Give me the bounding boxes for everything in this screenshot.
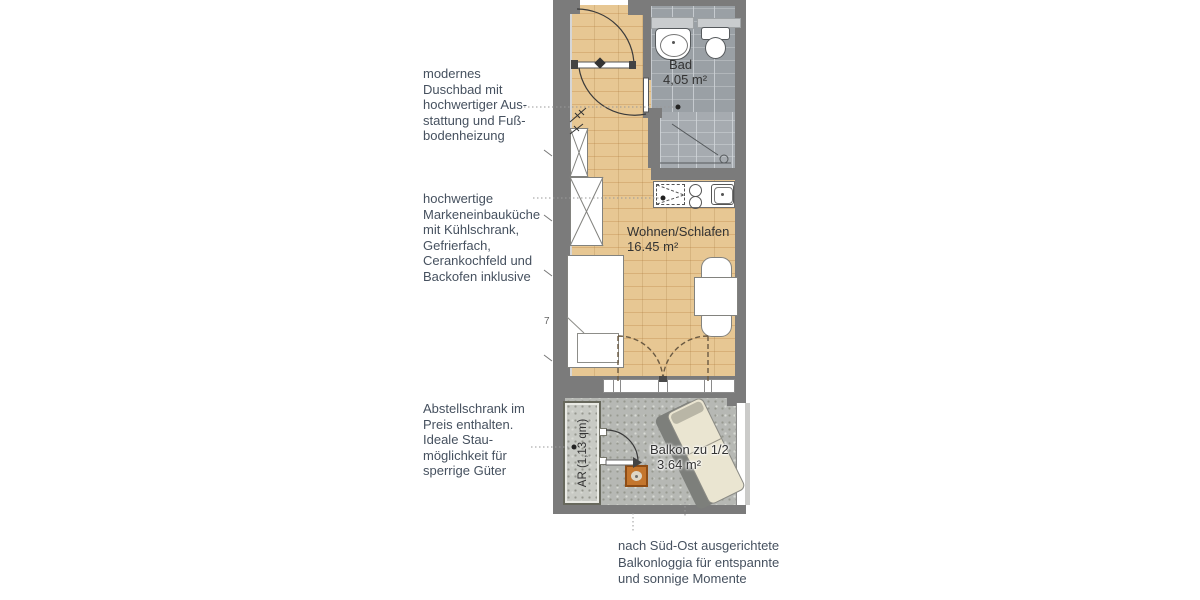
dimension-fragment: 7 [544,316,550,327]
annotation-line: sperrige Güter [423,463,525,479]
floorplan-page: Bad 4,05 m² Wohnen/Schlafen 16.45 m² Bal… [0,0,1200,600]
annotation-line: möglichkeit für [423,448,525,464]
annotation-line: und sonnige Momente [618,571,779,588]
window-post-1 [613,379,621,393]
annotation-line: Markeneinbauküche [423,207,540,223]
annotation-line: Preis enthalten. [423,417,525,433]
bath-hall-wall [643,6,651,80]
balcony-table [625,465,648,487]
washbasin [655,28,691,60]
top-wall [648,0,746,6]
right-wall [735,0,746,403]
annotation-line: Ideale Stau- [423,432,525,448]
washbasin-bowl [660,34,688,57]
annotation-line: Gefrierfach, [423,238,540,254]
annotation-line: Cerankochfeld und [423,253,540,269]
dining-chair-bottom [701,313,732,337]
storage-door-jamb-bottom [599,457,607,465]
annotation-line: hochwertiger Aus- [423,97,527,113]
annotation-line: nach Süd-Ost ausgerichtete [618,538,779,555]
annotation-line: Balkonloggia für entspannte [618,555,779,572]
balkon-name: Balkon zu 1/2 [650,442,729,457]
shower-tile-floor [660,112,735,168]
wohnen-name: Wohnen/Schlafen [627,224,729,239]
window-post-2 [658,379,668,393]
bath-kitchen-wall [651,168,735,180]
room-label-wohnen: Wohnen/Schlafen 16.45 m² [627,224,729,254]
bad-area: 4,05 m² [663,72,707,87]
kitchen-sink-drain [721,193,724,196]
annotation-bathroom: modernes Duschbad mit hochwertiger Aus- … [423,66,527,144]
balcony-railing-outer [745,403,750,505]
bed-pillow [577,333,619,363]
cooktop-burner-2 [689,196,702,209]
window-post-3 [704,379,712,393]
wohnen-area: 16.45 m² [627,239,729,254]
balcony-window-band [603,379,735,393]
room-label-balkon: Balkon zu 1/2 3.64 m² [650,442,729,472]
balkon-area: 3.64 m² [657,457,729,472]
balcony-bottom-wall [553,505,746,514]
refrigerator [656,184,685,205]
washbasin-tap [672,41,675,44]
annotation-line: bodenheizung [423,128,527,144]
room-label-bad: Bad 4,05 m² [669,57,707,87]
annotation-line: mit Kühlschrank, [423,222,540,238]
annotation-line: Abstellschrank im [423,401,525,417]
annotation-line: modernes [423,66,527,82]
wardrobe-small [570,128,588,177]
wardrobe-large [570,177,603,246]
dining-table [694,277,738,316]
room-label-ar: AR (1,13 qm) [577,401,591,505]
toilet-bowl [705,37,726,59]
annotation-line: Duschbad mit [423,82,527,98]
annotation-line: stattung und Fuß- [423,113,527,129]
balcony-table-center [635,475,638,478]
annotation-line: Backofen inklusive [423,269,540,285]
bad-name: Bad [669,57,707,72]
annotation-balcony: nach Süd-Ost ausgerichtete Balkonloggia … [618,538,779,588]
shower-side-wall [648,112,660,168]
entry-door-jamb-left [570,0,580,14]
annotation-line: hochwertige [423,191,540,207]
storage-door-jamb-top [599,428,607,436]
bed [567,255,624,368]
annotation-storage: Abstellschrank im Preis enthalten. Ideal… [423,401,525,479]
annotation-kitchen: hochwertige Markeneinbauküche mit Kühlsc… [423,191,540,285]
kitchen-sink [711,184,734,205]
